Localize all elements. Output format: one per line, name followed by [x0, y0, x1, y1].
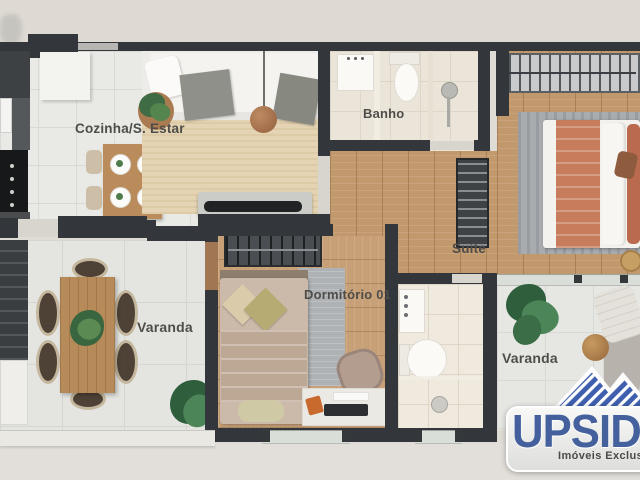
shower-stem [447, 97, 450, 127]
door-clip [620, 275, 628, 283]
balcony-cabinet-dark [0, 240, 28, 360]
suite-pillow-salmon [627, 124, 640, 244]
label-kitchen-living: Cozinha/S. Estar [75, 121, 185, 136]
brand-logo: UPSIDE Imóveis Exclusivos [500, 358, 640, 473]
balcony-chair [114, 290, 138, 336]
door-suitebath [452, 274, 482, 283]
suite-blanket [556, 120, 600, 248]
kitchen-counter [12, 98, 30, 150]
pendant-cord [263, 44, 265, 108]
bathroom-partition [428, 51, 433, 140]
balcony-ledge [0, 430, 215, 446]
burner-dot [10, 177, 14, 181]
window-top [78, 43, 118, 50]
shower-step [399, 376, 483, 380]
label-bathroom: Banho [363, 106, 404, 121]
faucet-dot [354, 57, 357, 60]
wardrobe-rod [501, 72, 636, 74]
wardrobe-rod [228, 249, 318, 251]
wall-bath-right [478, 51, 490, 151]
wall-suite-left [496, 43, 509, 116]
stove [0, 150, 28, 212]
door-clip [415, 430, 422, 442]
kitchen-island [40, 52, 90, 100]
balcony-chair [114, 340, 138, 384]
kitchen-sink [0, 98, 12, 133]
shower-drain [431, 396, 448, 413]
balcony-side-table [582, 334, 609, 361]
faucet-dot [347, 57, 350, 60]
faucet-dot [404, 304, 408, 308]
suite-toilet-bowl [407, 339, 447, 380]
pendant-lamp [250, 106, 277, 133]
hall-coat-rack [456, 158, 489, 248]
wall-kitchen-bottom-a [0, 218, 18, 238]
bedroom-wardrobe [224, 232, 322, 267]
tv [204, 201, 302, 212]
wall-bedroom-right [385, 224, 398, 442]
door-clip [574, 275, 582, 283]
balcony-chair [36, 340, 60, 384]
wall-living-bath [318, 51, 330, 156]
suite-pillow [602, 122, 626, 246]
wall-bedroom-top [205, 224, 333, 236]
floor-plan: Cozinha/S. Estar Banho Suíte Dormitório … [0, 0, 640, 480]
door-bath [430, 141, 474, 150]
suite-wardrobe [497, 53, 640, 93]
top-margin [0, 0, 640, 43]
kitchen-dining-chair [86, 186, 102, 210]
label-balcony-left: Varanda [137, 319, 193, 335]
balcony-cabinet-white [0, 360, 28, 425]
faucet-dot [361, 57, 364, 60]
door-living-hall [318, 156, 330, 216]
bedroom-wood-door [205, 242, 218, 290]
laptop [324, 404, 368, 416]
toilet-bowl [394, 63, 419, 102]
plate-garnish [116, 160, 123, 167]
bedroom-balcony-door [262, 430, 350, 444]
fridge [0, 51, 30, 98]
bedroom-end-cushion [238, 400, 284, 422]
kitchen-dining-chair [86, 150, 102, 174]
burner-dot [10, 190, 14, 194]
door-clip [262, 430, 270, 442]
wall-suitebath-right [483, 273, 497, 442]
logo-tagline-text: Imóveis Exclusivos [558, 450, 640, 462]
plate-garnish [116, 193, 123, 200]
label-suite: Suíte [452, 241, 486, 256]
label-bedroom-01: Dormitório 01 [304, 287, 391, 302]
faucet-dot [404, 295, 408, 299]
desk-tray [333, 392, 369, 401]
sofa-cushion [179, 69, 234, 121]
wall-bath-bottom [330, 140, 430, 151]
logo-brand-text: UPSIDE [512, 408, 640, 454]
suite-stool [620, 250, 640, 272]
wall-kitchen-bottom-b [58, 216, 147, 238]
door-clip [455, 430, 462, 442]
burner-dot [10, 203, 14, 207]
suite-bath-sink [399, 289, 425, 333]
suite-balcony-door [497, 274, 640, 286]
sofa-cushion [272, 73, 321, 126]
balcony-chair [36, 290, 60, 336]
bathroom-partition [374, 51, 380, 140]
top-left-shadow [0, 14, 22, 44]
faucet-dot [404, 313, 408, 317]
door-kitchen-balcony [18, 219, 58, 237]
bedroom-blanket [221, 330, 307, 402]
door-clip [342, 430, 350, 442]
burner-dot [10, 164, 14, 168]
